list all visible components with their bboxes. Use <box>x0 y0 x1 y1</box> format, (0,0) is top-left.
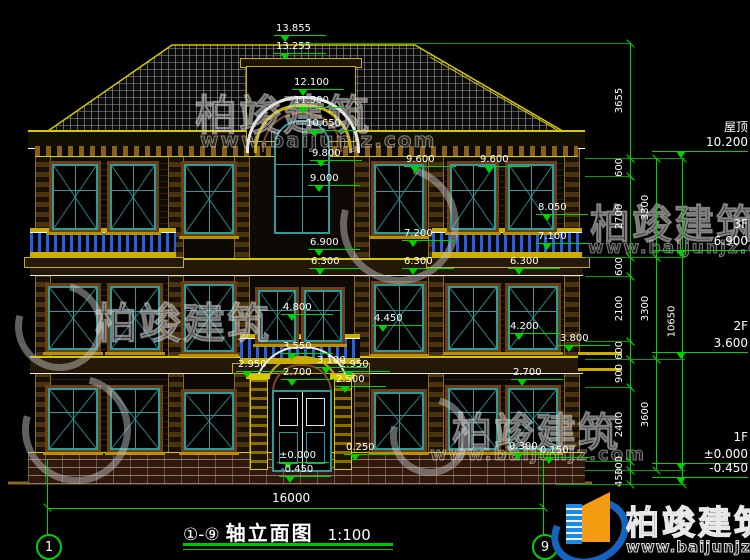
window-sill <box>105 232 161 235</box>
title-text: 轴立面图 <box>226 517 314 546</box>
drawing-title: ①-⑨ 轴立面图 1:100 <box>183 517 371 546</box>
overall-dim-line <box>47 508 543 509</box>
elevation-marker-value: 2.950 <box>238 359 267 370</box>
window <box>52 164 98 230</box>
dimension-segment <box>656 257 657 359</box>
axis-bubble-1: 1 <box>36 534 62 560</box>
elevation-marker-triangle <box>517 379 527 386</box>
floor-level-elevation: 6.900 <box>652 234 748 248</box>
elevation-marker-value: 2.950 <box>340 359 369 370</box>
extension-line <box>585 158 685 159</box>
floor-level-triangle <box>676 250 686 257</box>
elevation-marker-value: 8.050 <box>538 202 567 213</box>
elevation-marker-value: 4.200 <box>510 321 539 332</box>
dimension-segment <box>630 341 631 359</box>
elevation-marker-value: 9.600 <box>406 154 435 165</box>
elevation-marker-triangle <box>280 53 290 60</box>
dimension-segment <box>630 176 631 257</box>
floor-level-leader <box>652 151 748 152</box>
dimension-segment <box>630 387 631 461</box>
extension-line <box>585 387 632 388</box>
floor-level-leader <box>652 250 748 251</box>
elevation-marker-value: 6.900 <box>310 237 339 248</box>
window-sill <box>179 354 239 357</box>
title-underline-2 <box>183 549 393 550</box>
window-sill <box>179 236 239 239</box>
window <box>448 286 498 350</box>
elevation-marker-value: 0.300 <box>509 441 538 452</box>
elevation-marker-triangle <box>514 268 524 275</box>
window <box>508 286 558 350</box>
floor-level-leader <box>652 477 748 478</box>
elevation-marker-value: 9.000 <box>310 173 339 184</box>
elevation-marker-value: -0.450 <box>281 464 313 475</box>
window-sill <box>47 232 103 235</box>
overall-dim-text: 16000 <box>272 493 310 504</box>
elevation-marker-value: 2.700 <box>283 367 312 378</box>
axis-number: 1 <box>45 540 53 555</box>
brand-url: www.baijunjz.com <box>626 538 750 556</box>
axis-line-9 <box>543 460 544 534</box>
title-axis-range: ①-⑨ <box>183 525 220 545</box>
window-sill <box>369 354 429 357</box>
dimension-segment <box>630 276 631 341</box>
dimension-value: 3300 <box>639 268 653 348</box>
elevation-marker-value: 0.250 <box>346 442 375 453</box>
elevation-marker-triangle <box>287 379 297 386</box>
elevation-marker-triangle <box>321 367 331 374</box>
elevation-marker-triangle <box>287 353 297 360</box>
window-sill <box>105 352 165 355</box>
dimension-segment <box>682 158 683 484</box>
dimension-segment <box>630 43 631 158</box>
dimension-segment <box>630 359 631 387</box>
elevation-marker-value: 7.100 <box>538 231 567 242</box>
elevation-marker-triangle <box>408 240 418 247</box>
extension-line <box>556 484 686 485</box>
elevation-marker-triangle <box>287 314 297 321</box>
elevation-marker-value: 11.500 <box>294 95 329 106</box>
extension-line <box>585 257 685 258</box>
floor-level-name: 1F <box>652 430 748 444</box>
dimension-value: 3300 <box>639 168 653 248</box>
extension-line <box>300 43 630 44</box>
elevation-marker-value: ±0.000 <box>279 450 316 461</box>
extension-line <box>585 461 632 462</box>
elevation-marker-triangle <box>310 130 320 137</box>
floor-level-elevation: ±0.000 <box>652 447 748 461</box>
elevation-marker-triangle <box>316 160 326 167</box>
watermark-text: 柏竣建筑 <box>95 290 271 351</box>
extension-line <box>585 470 685 471</box>
elevation-marker-value: 6.300 <box>404 256 433 267</box>
window-sill <box>179 452 239 455</box>
elevation-marker-value: 4.450 <box>374 313 403 324</box>
elevation-marker-value: 2.700 <box>513 367 542 378</box>
elevation-marker-triangle <box>514 333 524 340</box>
elevation-marker-value: 2.500 <box>336 374 365 385</box>
elevation-marker-triangle <box>242 371 252 378</box>
elevation-marker-triangle <box>410 166 420 173</box>
elevation-marker-triangle <box>564 345 574 352</box>
elevation-marker-value: 4.800 <box>283 302 312 313</box>
elevation-marker-value: 6.300 <box>510 256 539 267</box>
extension-line <box>585 276 632 277</box>
extension-line <box>585 341 632 342</box>
floor-level-elevation: -0.450 <box>652 461 748 475</box>
dimension-value: 10650 <box>665 281 679 361</box>
elevation-marker-triangle <box>314 185 324 192</box>
elevation-marker-value: 10.650 <box>306 118 341 129</box>
elevation-marker-value: 6.300 <box>311 256 340 267</box>
window <box>184 392 234 450</box>
dimension-segment <box>656 158 657 257</box>
elevation-drawing: 柏竣建筑www.baijunjz.com柏竣建筑www.baijunjz.com… <box>0 0 750 560</box>
elevation-marker-value: 12.100 <box>294 77 329 88</box>
dimension-segment <box>630 158 631 176</box>
elevation-marker-triangle <box>544 457 554 464</box>
title-scale: 1:100 <box>328 526 371 544</box>
elevation-marker-value: 9.600 <box>480 154 509 165</box>
elevation-marker-value: 3.550 <box>283 341 312 352</box>
window-sill <box>503 352 563 355</box>
floor-level-elevation: 10.200 <box>652 135 748 149</box>
elevation-marker-value: 9.800 <box>312 148 341 159</box>
elevation-marker-triangle <box>542 243 552 250</box>
elevation-marker-triangle <box>378 325 388 332</box>
dimension-segment <box>656 359 657 470</box>
elevation-marker-triangle <box>484 166 494 173</box>
elevation-marker-triangle <box>513 453 523 460</box>
hip-line <box>430 57 566 135</box>
extension-line <box>585 359 685 360</box>
brand-logo <box>548 488 624 558</box>
window <box>304 290 342 342</box>
elevation-marker-value: 13.855 <box>276 23 311 34</box>
elevation-marker-triangle <box>350 454 360 461</box>
elevation-marker-value: 3.800 <box>560 333 589 344</box>
window <box>110 164 156 230</box>
pilaster-left <box>250 379 268 470</box>
elevation-marker-triangle <box>408 268 418 275</box>
elevation-marker-triangle <box>340 386 350 393</box>
floor-level-name: 3F <box>652 217 748 231</box>
window <box>184 164 234 234</box>
elevation-marker-triangle <box>542 214 552 221</box>
axis-line-1 <box>47 460 48 534</box>
extension-line <box>585 176 632 177</box>
title-underline-1 <box>183 543 393 546</box>
brand-name: 柏竣建筑 <box>626 496 750 544</box>
elevation-marker-triangle <box>315 268 325 275</box>
window-sill <box>443 352 503 355</box>
dimension-value: 3600 <box>639 375 653 455</box>
elevation-marker-triangle <box>298 107 308 114</box>
dimension-segment <box>630 257 631 276</box>
brand-logo-blue-tower <box>566 504 582 544</box>
floor-level-name: 屋顶 <box>652 118 748 135</box>
elevation-marker-value: 7.200 <box>404 228 433 239</box>
elevation-marker-value: 0.150 <box>540 445 569 456</box>
elevation-marker-triangle <box>314 249 324 256</box>
elevation-marker-triangle <box>285 476 295 483</box>
